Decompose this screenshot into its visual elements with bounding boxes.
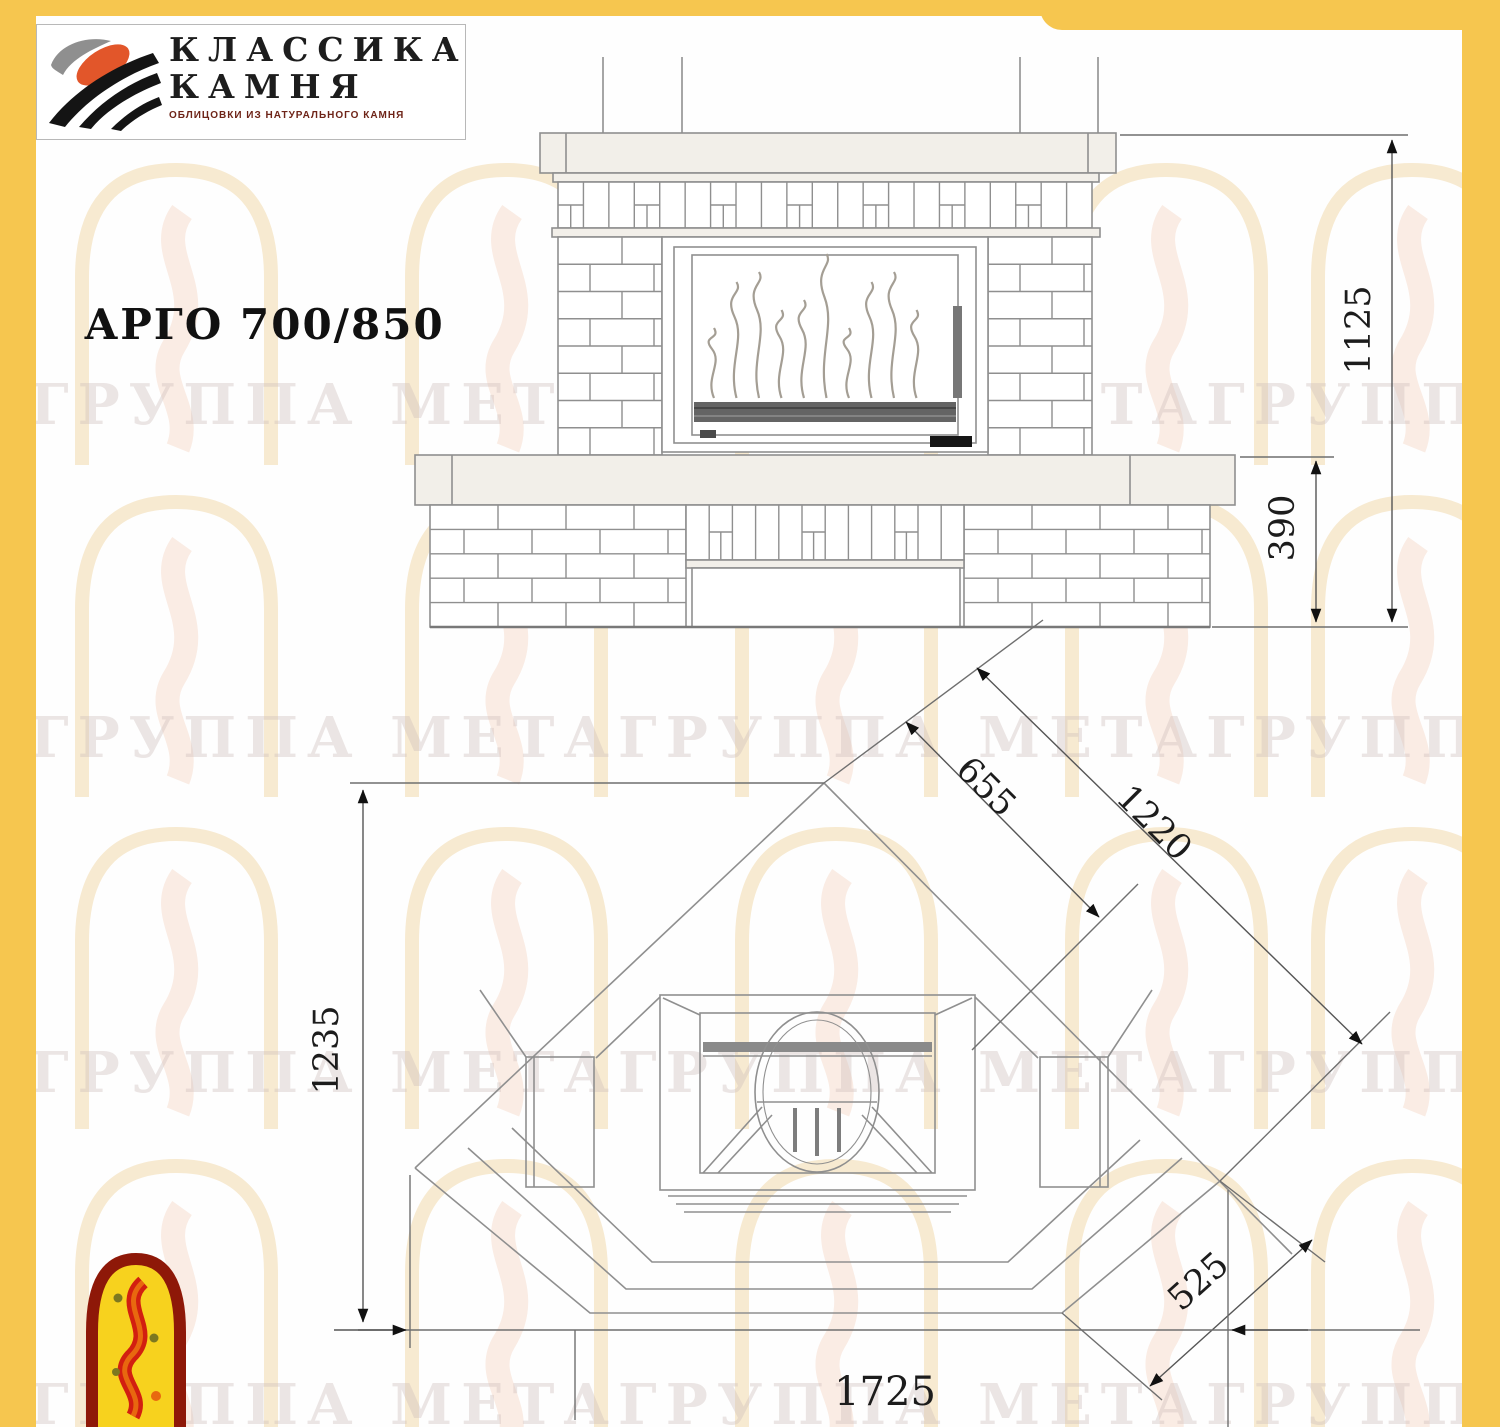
frame-top-right xyxy=(1040,0,1500,30)
plan-dimensions: 655 1220 1235 525 1725 xyxy=(307,620,1420,1427)
drawing-sheet: ГРУППА МЕТАГРУППА МЕТАГРУППА МЕТА ГРУППА… xyxy=(0,0,1500,1427)
brand-name-line1: КЛАССИКА xyxy=(169,31,461,68)
technical-drawing: 1125 390 xyxy=(0,0,1500,1427)
brand-tagline: ОБЛИЦОВКИ ИЗ НАТУРАЛЬНОГО КАМНЯ xyxy=(169,110,461,121)
firebox-insert-plan xyxy=(660,995,975,1212)
dim-plan-depth: 1235 xyxy=(307,1005,347,1094)
chimney-lines xyxy=(603,57,1098,133)
wall-right xyxy=(824,783,1292,1254)
base-plinth xyxy=(430,505,1210,627)
plan-view xyxy=(415,783,1292,1313)
wall-left xyxy=(415,783,824,1168)
frame-left xyxy=(0,0,36,1427)
dim-front-total-height: 1125 xyxy=(1339,285,1379,374)
front-elevation xyxy=(415,57,1235,627)
hearth-shelf xyxy=(415,455,1235,505)
frame-right xyxy=(1462,0,1500,1427)
dim-plan-total-width: 1725 xyxy=(834,1369,936,1415)
page-title: АРГО 700/850 xyxy=(84,300,445,349)
frieze-brick-pattern xyxy=(558,182,1067,228)
dim-front-base-height: 390 xyxy=(1263,495,1303,562)
firebox xyxy=(662,237,988,452)
dim-plan-side-inner: 655 xyxy=(948,749,1024,825)
dim-plan-front-chamfer: 525 xyxy=(1160,1245,1236,1319)
mantel-shelf xyxy=(540,133,1116,182)
brand-name-line2: КАМНЯ xyxy=(169,68,461,105)
meta-group-logo-icon xyxy=(80,1246,192,1427)
brand-logo-box: КЛАССИКА КАМНЯ ОБЛИЦОВКИ ИЗ НАТУРАЛЬНОГО… xyxy=(36,24,466,140)
brand-logo-mark-icon xyxy=(45,31,165,131)
dim-plan-side-full: 1220 xyxy=(1108,778,1199,869)
